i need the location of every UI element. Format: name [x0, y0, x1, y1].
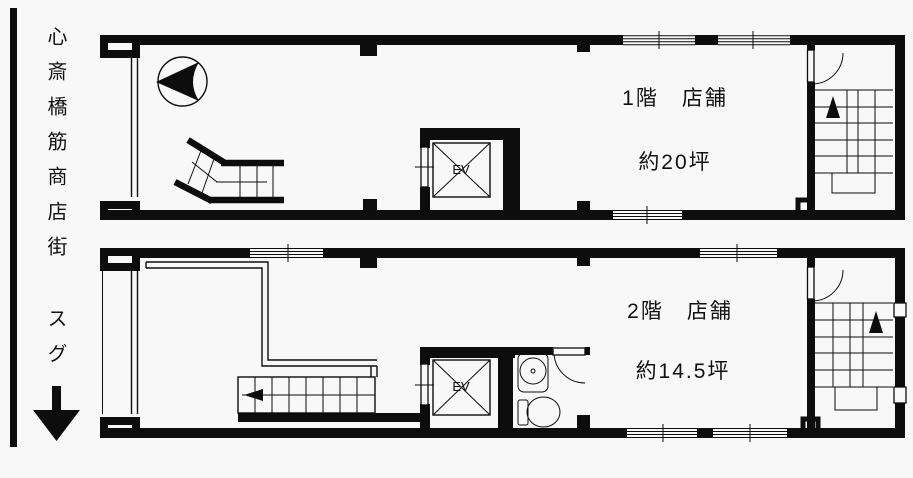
floor2-entrance-door: [808, 267, 844, 301]
toilet-door: [553, 348, 585, 383]
floor1-elevator-label: EV: [452, 162, 470, 177]
floor1-name-label: 1階 店舗: [622, 87, 728, 110]
toilet-room: [513, 347, 590, 437]
floor2-name-label: 2階 店舗: [627, 300, 733, 323]
floor1-storefront-glass: [132, 58, 138, 197]
floor1-plan: EV 1階 店舗 約20坪: [100, 31, 905, 224]
floor2-area-label: 約14.5坪: [636, 360, 731, 383]
floor1-walls: [100, 35, 905, 220]
floorplan-page: 心斎橋筋商店街 スグ: [0, 0, 913, 478]
toilet-icon: [518, 397, 560, 427]
stair-down-arrow-icon: [244, 389, 263, 401]
north-arrow-icon: [156, 57, 207, 106]
floor2-front-window: [103, 271, 138, 414]
stair-void-railing: [146, 262, 377, 377]
sink-icon: [518, 353, 548, 392]
floor2-plan: EV: [100, 244, 906, 442]
floor1-switchback-stairs: [175, 140, 284, 201]
stair-up-arrow-icon: [869, 311, 883, 333]
floor2-staircase: [815, 303, 893, 410]
floor1-windows: [613, 31, 790, 224]
floorplan-drawing: EV 1階 店舗 約20坪: [0, 0, 913, 478]
floor2-elevator-label: EV: [452, 379, 470, 394]
down-arrow-icon: [33, 386, 80, 441]
floor1-elevator: EV: [415, 128, 520, 210]
floor2-straight-stairs: [238, 377, 375, 413]
floor2-elevator: EV: [415, 347, 515, 428]
floor1-entrance-door: [808, 50, 844, 84]
street-rule-line: [10, 8, 17, 447]
floor1-staircase: [815, 90, 893, 193]
floor1-area-label: 約20坪: [638, 151, 711, 174]
